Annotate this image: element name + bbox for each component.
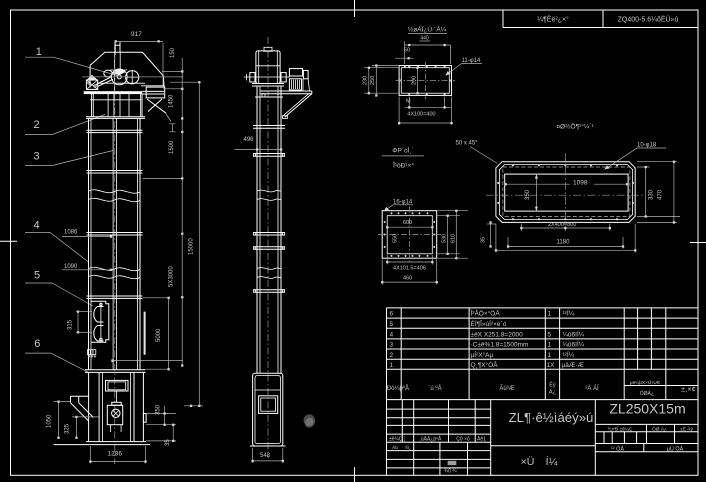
svg-text:6: 6 [34, 338, 40, 350]
svg-text:230: 230 [363, 76, 369, 85]
svg-text:1: 1 [548, 311, 552, 318]
svg-text:·C±ê%1.8=1500mm: ·C±ê%1.8=1500mm [471, 342, 529, 349]
svg-text:±êX X251.8=2000: ±êX X251.8=2000 [471, 331, 524, 338]
svg-text:250: 250 [370, 76, 376, 85]
svg-text:1500: 1500 [169, 140, 175, 154]
svg-text:Äê1: Äê1 [477, 436, 486, 443]
svg-text:Ãû³Æ: Ãû³Æ [499, 385, 514, 392]
svg-text:3: 3 [390, 342, 394, 349]
svg-text:½×¶Î ±ê¼Ç: ½×¶Î ±ê¼Ç [608, 425, 633, 432]
svg-text:600: 600 [403, 220, 412, 226]
svg-text:±,×¢: ±,×¢ [681, 385, 696, 394]
svg-text:¹²Í¼: ¹²Í¼ [563, 309, 575, 318]
svg-text:315: 315 [68, 319, 74, 330]
svg-text:Ñ¸: Ñ¸ [405, 444, 410, 451]
svg-text:5: 5 [34, 270, 40, 282]
svg-text:5: 5 [548, 331, 552, 338]
svg-text:1050: 1050 [47, 414, 53, 428]
svg-text:¼¶Èë²¿×°: ¼¶Èë²¿×° [537, 15, 569, 24]
svg-text:µâÆ·Æ: µâÆ·Æ [562, 362, 585, 369]
svg-text:Êý: Êý [549, 381, 556, 389]
svg-text:470: 470 [658, 189, 664, 200]
svg-text:2X400=800: 2X400=800 [548, 222, 576, 228]
svg-text:5: 5 [390, 321, 394, 328]
svg-text:35: 35 [165, 439, 171, 446]
svg-text:150: 150 [170, 47, 176, 58]
svg-text:290: 290 [411, 76, 417, 85]
svg-text:350: 350 [525, 189, 531, 200]
svg-text:¤Ø½Ö¶¹°¼´¹: ¤Ø½Ö¶¹°¼´¹ [556, 123, 594, 131]
svg-text:4: 4 [390, 331, 394, 338]
svg-text:15000: 15000 [189, 238, 195, 255]
svg-text:35: 35 [481, 237, 487, 243]
svg-text:350: 350 [156, 404, 162, 415]
svg-text:ΦΡ´óÌ¸´: ΦΡ´óÌ¸´ [392, 146, 413, 155]
svg-text:µÍ²X°Aµ: µÍ²X°Aµ [471, 350, 494, 359]
svg-text:Q¸¶X°ÓÅ: Q¸¶X°ÓÅ [471, 360, 499, 369]
svg-text:50: 50 [404, 48, 410, 54]
svg-text:3: 3 [34, 151, 40, 163]
svg-text:ÖØ Á¿: ÖØ Á¿ [652, 425, 667, 432]
svg-text:4: 4 [34, 220, 40, 232]
svg-text:1: 1 [36, 46, 42, 58]
svg-text:5000: 5000 [156, 328, 162, 342]
svg-text:¼û6IÍ¼: ¼û6IÍ¼ [563, 329, 585, 338]
svg-text:1: 1 [548, 352, 552, 359]
svg-text:½øÁÏ¿Ú·¨À¼: ½øÁÏ¿Ú·¨À¼ [408, 25, 447, 34]
svg-text:1: 1 [548, 342, 552, 349]
svg-text:1180: 1180 [557, 240, 571, 246]
svg-text:1: 1 [390, 362, 394, 369]
svg-text:16-φ14: 16-φ14 [393, 199, 413, 205]
svg-text:Ðò¼þºÅ: Ðò¼þºÅ [387, 385, 409, 392]
svg-text:530: 530 [442, 234, 448, 243]
svg-text:917: 917 [131, 31, 142, 38]
svg-text:Í¼: Í¼ [546, 455, 558, 468]
svg-text:Î¹òÐ¹×°: Î¹òÐ¹×° [392, 161, 414, 170]
svg-text:1450: 1450 [169, 94, 175, 108]
svg-text:µ¥¼þX×Ü¼Æ: µ¥¼þX×Ü¼Æ [630, 379, 661, 386]
svg-text:2: 2 [390, 352, 394, 359]
svg-text:550: 550 [393, 234, 399, 243]
svg-text:ZQ400-5.6¼õËÙ»ú: ZQ400-5.6¼õËÙ»ú [618, 15, 679, 24]
svg-text:330: 330 [649, 189, 655, 200]
svg-text:Î²ÂÖ×°ÖÃ: Î²ÂÖ×°ÖÃ [470, 309, 501, 318]
svg-text:1X: 1X [547, 362, 556, 369]
svg-text:¸üÄÄ¿þºÅ: ¸üÄÄ¿þºÅ [419, 436, 442, 443]
svg-text:5X3000: 5X3000 [169, 266, 175, 287]
svg-text:1098: 1098 [573, 180, 588, 187]
svg-text:440: 440 [420, 36, 429, 42]
svg-text:²Ä ÁÏ: ²Ä ÁÏ [585, 385, 599, 392]
svg-text:µÚ ÖÅ: µÚ ÖÅ [667, 446, 684, 453]
svg-text:ÉÏ¶Î»úÍ²×é´ó: ÉÏ¶Î»úÍ²×é´ó [471, 319, 507, 328]
svg-text:ÖØÁ¿: ÖØÁ¿ [640, 390, 654, 397]
svg-text:±È Àý: ±È Àý [680, 425, 693, 432]
svg-text:Á¿: Á¿ [549, 389, 556, 396]
svg-text:548: 548 [260, 453, 271, 459]
svg-text:10-φ18: 10-φ18 [637, 143, 657, 149]
svg-text:50 x 45°: 50 x 45° [456, 141, 479, 147]
svg-text:¼û6IÍ¼: ¼û6IÍ¼ [563, 340, 585, 349]
svg-text:6: 6 [390, 311, 394, 318]
svg-text:496: 496 [244, 137, 255, 143]
svg-text:4X101.5=406: 4X101.5=406 [393, 265, 426, 271]
svg-text:±ê¼Ç´¦: ±ê¼Ç´¦ [389, 437, 405, 443]
svg-text:1090: 1090 [64, 264, 78, 270]
svg-text:11-φ14: 11-φ14 [462, 58, 481, 64]
svg-text:1086: 1086 [64, 230, 78, 236]
svg-text:Äb: Äb [392, 444, 398, 451]
svg-text:ZL250X15m: ZL250X15m [609, 401, 685, 417]
svg-text:2: 2 [34, 119, 40, 131]
svg-text:4X100=400: 4X100=400 [407, 112, 435, 118]
svg-text:Ç0 ×õ: Ç0 ×õ [456, 437, 470, 443]
svg-text:1286: 1286 [108, 451, 123, 458]
svg-text:×Ü: ×Ü [521, 456, 535, 468]
svg-text:610: 610 [450, 234, 456, 243]
svg-text:¹² ÓÅ: ¹² ÓÅ [611, 446, 624, 453]
svg-text:ZL¶·ê½ìáéý»ú: ZL¶·ê½ìáéý»ú [509, 410, 594, 425]
svg-text:¾0 ¾´: ¾0 ¾´ [444, 469, 459, 475]
svg-text:460: 460 [403, 276, 412, 282]
svg-text:¹²Í¼: ¹²Í¼ [563, 350, 575, 359]
svg-text:´ú ºÅ: ´ú ºÅ [428, 385, 441, 392]
svg-text:325: 325 [65, 423, 71, 434]
svg-text:M: M [406, 99, 411, 105]
